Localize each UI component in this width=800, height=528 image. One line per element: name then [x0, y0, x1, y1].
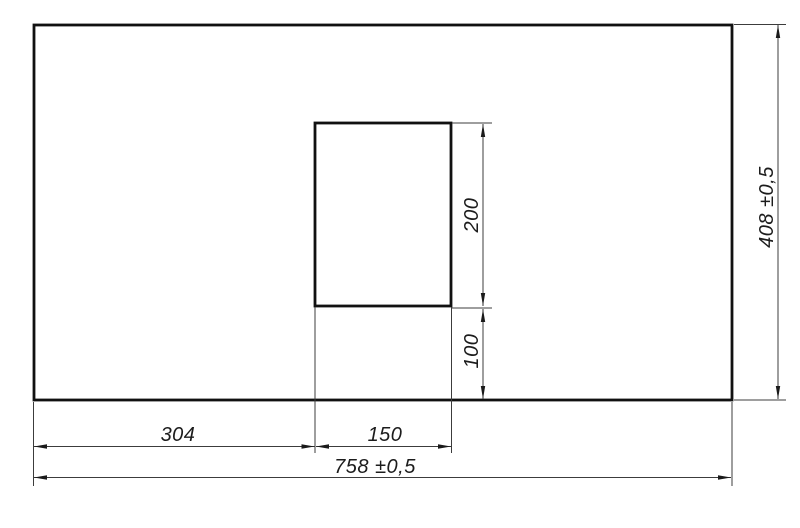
- dim-label-100: 100: [461, 334, 483, 369]
- dim-arrow-408-bottom: [776, 386, 780, 399]
- dim-label-408: 408 ±0,5: [756, 166, 778, 248]
- dim-arrow-200-bottom: [481, 293, 485, 306]
- dim-arrow-304-right: [302, 444, 315, 448]
- cutout-outline: [315, 123, 451, 306]
- dim-arrow-758-right: [718, 475, 731, 479]
- dim-offset-left: 304: [34, 424, 315, 449]
- dim-cutout-width: 150: [316, 424, 451, 449]
- part-outline: [34, 25, 732, 400]
- dim-arrow-100-top: [481, 309, 485, 322]
- dim-label-758: 758 ±0,5: [334, 456, 416, 478]
- dim-label-150: 150: [368, 424, 403, 446]
- dim-arrow-758-left: [34, 475, 47, 479]
- dim-overall-width: 758 ±0,5: [34, 456, 731, 480]
- dim-arrow-150-left: [316, 444, 329, 448]
- dim-label-304: 304: [161, 424, 196, 446]
- dim-arrow-150-right: [438, 444, 451, 448]
- dim-label-200: 200: [461, 198, 483, 234]
- dim-arrow-100-bottom: [481, 386, 485, 399]
- dim-offset-bottom: 100: [461, 309, 485, 399]
- technical-drawing: 304 150 758 ±0,5 200 100: [0, 0, 800, 528]
- dim-cutout-height: 200: [461, 124, 485, 306]
- dim-arrow-304-left: [34, 444, 47, 448]
- dim-arrow-200-top: [481, 124, 485, 137]
- dim-arrow-408-top: [776, 25, 780, 38]
- drawing-canvas: 304 150 758 ±0,5 200 100: [0, 0, 800, 528]
- dim-overall-height: 408 ±0,5: [756, 25, 780, 399]
